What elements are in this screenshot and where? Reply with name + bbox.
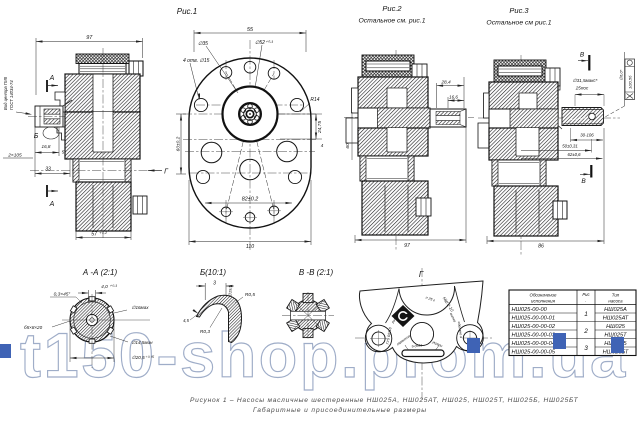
svg-text:Тип: Тип bbox=[612, 293, 620, 298]
svg-text:86: 86 bbox=[538, 244, 544, 250]
svg-text:В: В bbox=[580, 52, 585, 59]
svg-text:∅35: ∅35 bbox=[198, 41, 208, 47]
svg-text:97: 97 bbox=[86, 35, 93, 41]
svg-text:1/20,5б: 1/20,5б bbox=[628, 75, 633, 89]
svg-text:Рис.1: Рис.1 bbox=[177, 7, 197, 16]
svg-text:Б: Б bbox=[34, 133, 39, 140]
svg-text:Г: Г bbox=[419, 270, 424, 279]
svg-text:24,75: 24,75 bbox=[317, 121, 323, 134]
svg-text:.: . bbox=[585, 298, 586, 303]
svg-text:∅52⁺⁰·³: ∅52⁺⁰·³ bbox=[255, 40, 273, 46]
svg-text:0,3×45°: 0,3×45° bbox=[54, 292, 71, 298]
svg-text:Рис.2: Рис.2 bbox=[382, 4, 402, 13]
svg-text:5: 5 bbox=[62, 150, 65, 156]
svg-text:Обозначение: Обозначение bbox=[530, 293, 557, 298]
svg-text:Остальное см рис.1: Остальное см рис.1 bbox=[486, 20, 551, 27]
svg-text:∅6,0*: ∅6,0* bbox=[619, 69, 624, 80]
svg-text:4: 4 bbox=[321, 143, 324, 148]
svg-text:НШ025: НШ025 bbox=[606, 324, 626, 330]
svg-text:R14: R14 bbox=[310, 97, 319, 103]
svg-text:60±0.2: 60±0.2 bbox=[176, 136, 182, 151]
svg-text:28,4: 28,4 bbox=[440, 80, 451, 86]
svg-text:2×105: 2×105 bbox=[7, 153, 22, 159]
svg-text:∅19,5: ∅19,5 bbox=[228, 285, 233, 297]
svg-text:3: 3 bbox=[584, 345, 588, 352]
svg-text:Б(10:1): Б(10:1) bbox=[200, 268, 226, 277]
svg-text:НШ025-00-00-01: НШ025-00-00-01 bbox=[512, 315, 556, 321]
svg-text:60: 60 bbox=[345, 143, 351, 149]
svg-text:НШ025А: НШ025А bbox=[604, 307, 627, 313]
svg-text:А -А (2:1): А -А (2:1) bbox=[82, 268, 118, 277]
svg-text:82±0.2: 82±0.2 bbox=[242, 197, 258, 203]
svg-text:насоса: насоса bbox=[608, 299, 623, 304]
svg-text:30-106: 30-106 bbox=[580, 133, 594, 138]
svg-text:∅20,5⁺⁰·⁰⁵: ∅20,5⁺⁰·⁰⁵ bbox=[132, 355, 155, 360]
svg-text:16,8: 16,8 bbox=[42, 144, 51, 149]
svg-text:25пос: 25пос bbox=[575, 86, 589, 91]
svg-text:R0,5: R0,5 bbox=[245, 292, 255, 298]
svg-text:4,5: 4,5 bbox=[183, 318, 189, 323]
svg-text:НШ025-00-00-05: НШ025-00-00-05 bbox=[512, 349, 556, 355]
svg-text:Габаритные и присоединительные: Габаритные и присоединительные размеры bbox=[253, 406, 427, 414]
svg-text:50±0,31: 50±0,31 bbox=[562, 144, 578, 149]
svg-text:∅16мах: ∅16мах bbox=[131, 305, 149, 310]
svg-text:ГОСТ 14034-74: ГОСТ 14034-74 bbox=[9, 80, 14, 110]
svg-text:∅31,5макс*: ∅31,5макс* bbox=[573, 78, 598, 83]
svg-text:16,6: 16,6 bbox=[449, 95, 458, 100]
svg-text:Рис.3: Рис.3 bbox=[509, 6, 529, 15]
svg-text:НШ025-00-00-03: НШ025-00-00-03 bbox=[512, 332, 556, 338]
svg-text:НШ025-00-00: НШ025-00-00 bbox=[512, 307, 548, 313]
svg-text:4 отв. ∅15: 4 отв. ∅15 bbox=[183, 58, 210, 64]
svg-text:∅14,5мин: ∅14,5мин bbox=[131, 340, 153, 345]
svg-text:3: 3 bbox=[213, 281, 216, 287]
svg-text:А: А bbox=[49, 75, 55, 82]
svg-text:57 ⁺⁰·²: 57 ⁺⁰·² bbox=[91, 232, 107, 238]
svg-text:62±0,6: 62±0,6 bbox=[567, 152, 581, 157]
svg-text:Рис: Рис bbox=[582, 292, 590, 297]
svg-text:Остальное см. рис.1: Остальное см. рис.1 bbox=[358, 18, 425, 25]
svg-text:Рисунок 1 – Насосы масличные ш: Рисунок 1 – Насосы масличные шестеренные… bbox=[190, 397, 579, 404]
svg-text:1: 1 bbox=[584, 311, 588, 318]
svg-text:2: 2 bbox=[583, 328, 588, 335]
svg-text:R0,3: R0,3 bbox=[200, 329, 210, 335]
svg-text:НШ025-00-00-04: НШ025-00-00-04 bbox=[512, 341, 556, 347]
svg-text:б5×8×20: б5×8×20 bbox=[24, 325, 43, 330]
svg-text:НШ025АТ: НШ025АТ bbox=[603, 315, 629, 321]
svg-text:33: 33 bbox=[45, 167, 51, 173]
svg-text:НШ025-00-00-02: НШ025-00-00-02 bbox=[512, 324, 556, 330]
svg-text:110: 110 bbox=[246, 244, 254, 250]
svg-text:В: В bbox=[581, 178, 586, 185]
svg-text:исполнения: исполнения bbox=[531, 299, 556, 304]
svg-text:4,0 ⁺⁰·³: 4,0 ⁺⁰·³ bbox=[101, 284, 117, 290]
svg-text:В -В (2:1): В -В (2:1) bbox=[299, 268, 334, 277]
svg-text:А: А bbox=[49, 201, 55, 208]
svg-text:Вид центра ГМ8: Вид центра ГМ8 bbox=[3, 76, 8, 110]
svg-text:55: 55 bbox=[247, 27, 254, 33]
